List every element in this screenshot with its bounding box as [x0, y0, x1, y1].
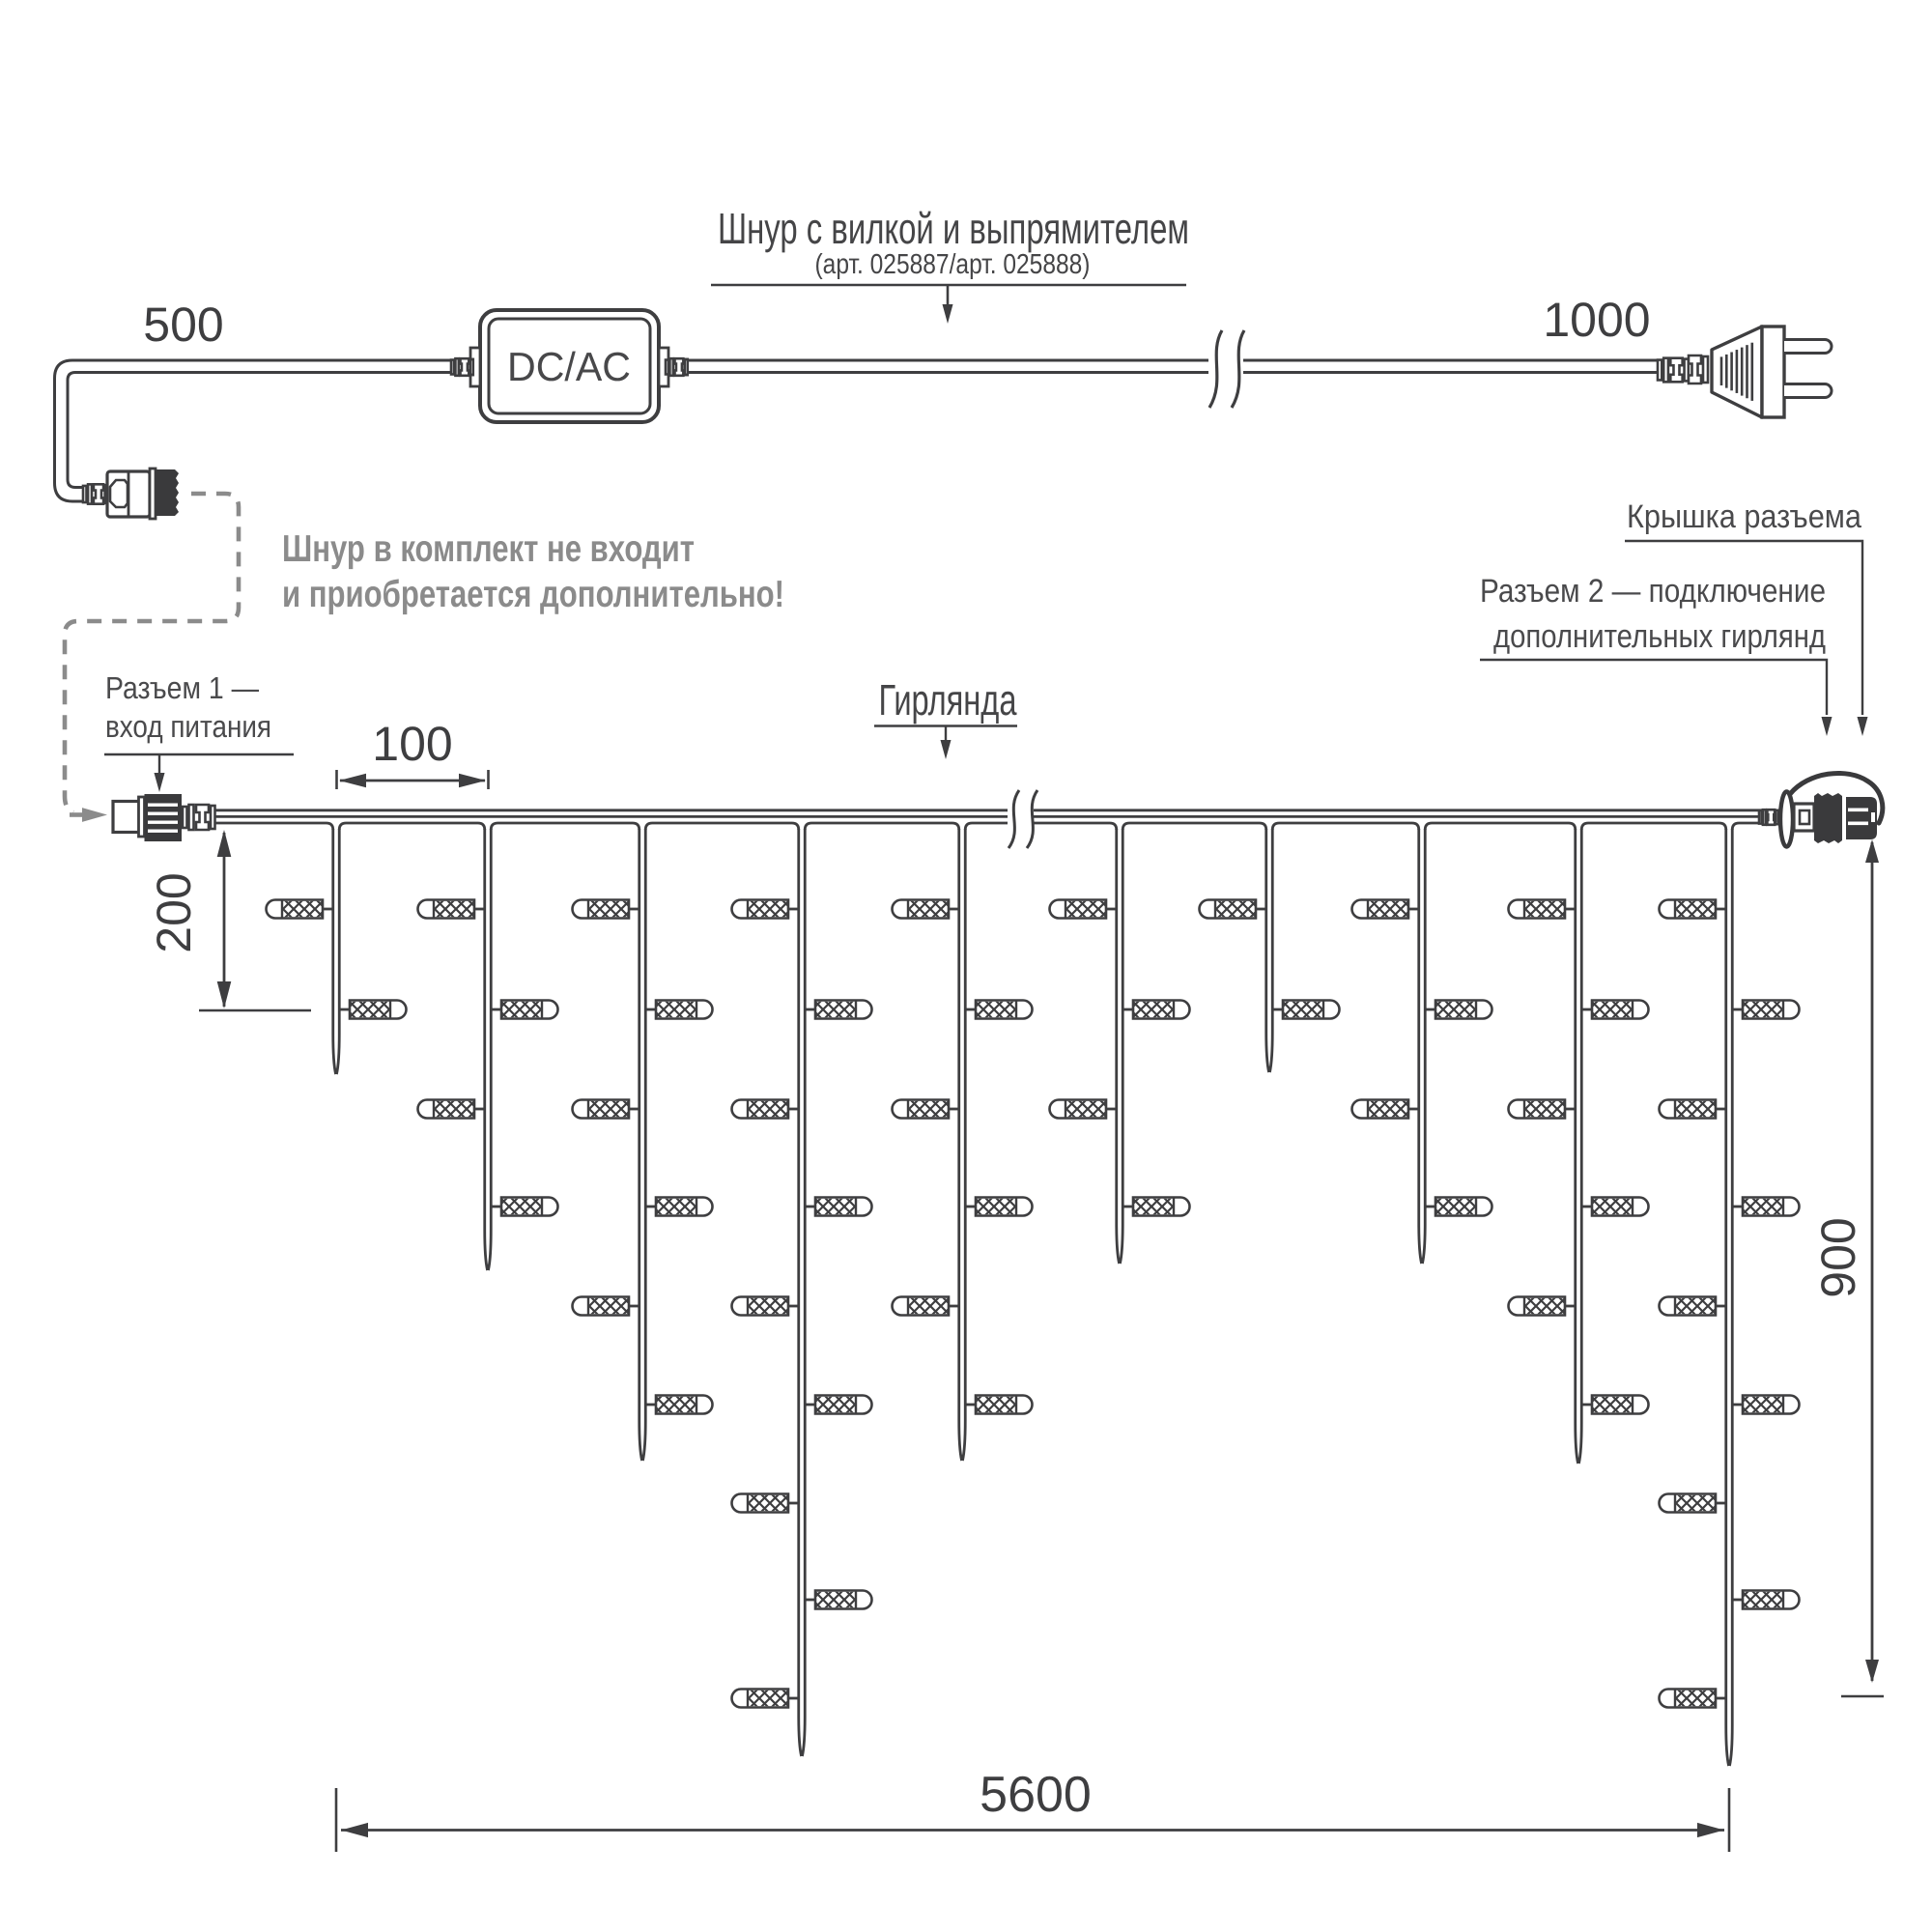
- svg-text:вход питания: вход питания: [105, 709, 271, 744]
- svg-text:900: 900: [1811, 1217, 1865, 1297]
- svg-text:Разъем 2 — подключение: Разъем 2 — подключение: [1480, 573, 1826, 610]
- svg-text:DC/AC: DC/AC: [507, 344, 631, 389]
- svg-text:100: 100: [372, 717, 452, 771]
- svg-text:200: 200: [147, 872, 201, 952]
- svg-text:Разъем 1 —: Разъем 1 —: [105, 670, 259, 705]
- svg-text:дополнительных гирлянд: дополнительных гирлянд: [1493, 618, 1826, 655]
- svg-text:5600: 5600: [980, 1767, 1092, 1823]
- svg-text:500: 500: [143, 298, 223, 352]
- svg-text:Гирлянда: Гирлянда: [879, 675, 1018, 724]
- svg-text:Шнур в комплект не входит: Шнур в комплект не входит: [282, 528, 695, 570]
- svg-text:1000: 1000: [1543, 293, 1650, 347]
- svg-text:и приобретается дополнительно!: и приобретается дополнительно!: [282, 574, 784, 615]
- svg-text:(арт. 025887/арт. 025888): (арт. 025887/арт. 025888): [815, 249, 1091, 280]
- svg-text:Крышка разъема: Крышка разъема: [1627, 498, 1861, 535]
- svg-text:Шнур с вилкой и выпрямителем: Шнур с вилкой и выпрямителем: [718, 204, 1189, 253]
